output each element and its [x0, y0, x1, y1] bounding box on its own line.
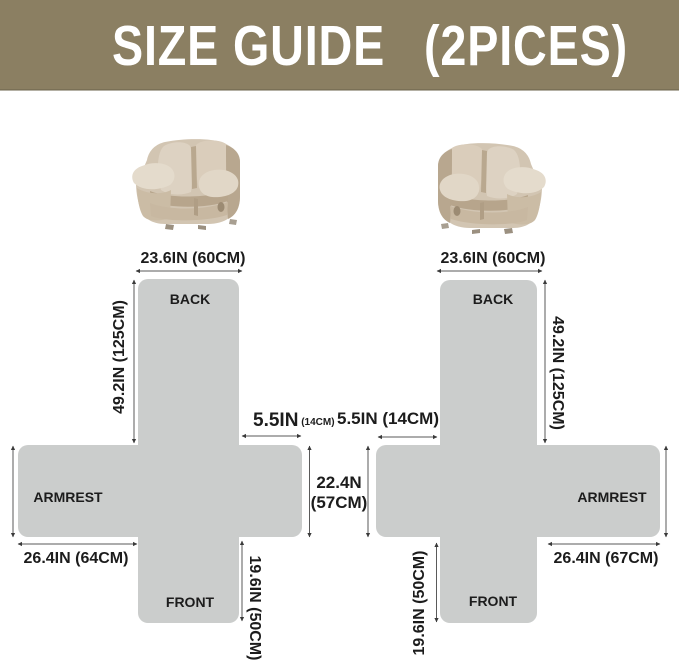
svg-text:FRONT: FRONT: [166, 594, 215, 610]
svg-text:26.4IN (64CM): 26.4IN (64CM): [24, 550, 129, 567]
svg-text:(57CM): (57CM): [311, 493, 368, 512]
svg-text:49.2IN (125CM): 49.2IN (125CM): [549, 316, 566, 430]
svg-text:FRONT: FRONT: [469, 593, 518, 609]
svg-text:26.4IN (67CM): 26.4IN (67CM): [554, 550, 659, 567]
svg-text:49.2IN (125CM): 49.2IN (125CM): [111, 300, 128, 414]
svg-text:5.5IN (14CM): 5.5IN (14CM): [253, 410, 335, 431]
svg-text:ARMREST: ARMREST: [577, 489, 647, 505]
svg-text:ARMREST: ARMREST: [33, 489, 103, 505]
svg-text:22.4N: 22.4N: [316, 473, 361, 492]
svg-text:23.6IN (60CM): 23.6IN (60CM): [441, 250, 546, 267]
svg-text:19.6IN (50CM): 19.6IN (50CM): [411, 551, 428, 656]
svg-text:23.6IN (60CM): 23.6IN (60CM): [141, 250, 246, 267]
svg-text:5.5IN (14CM): 5.5IN (14CM): [337, 409, 439, 428]
svg-text:19.6IN (50CM): 19.6IN (50CM): [246, 556, 263, 661]
svg-text:BACK: BACK: [473, 291, 513, 307]
svg-text:BACK: BACK: [170, 291, 210, 307]
